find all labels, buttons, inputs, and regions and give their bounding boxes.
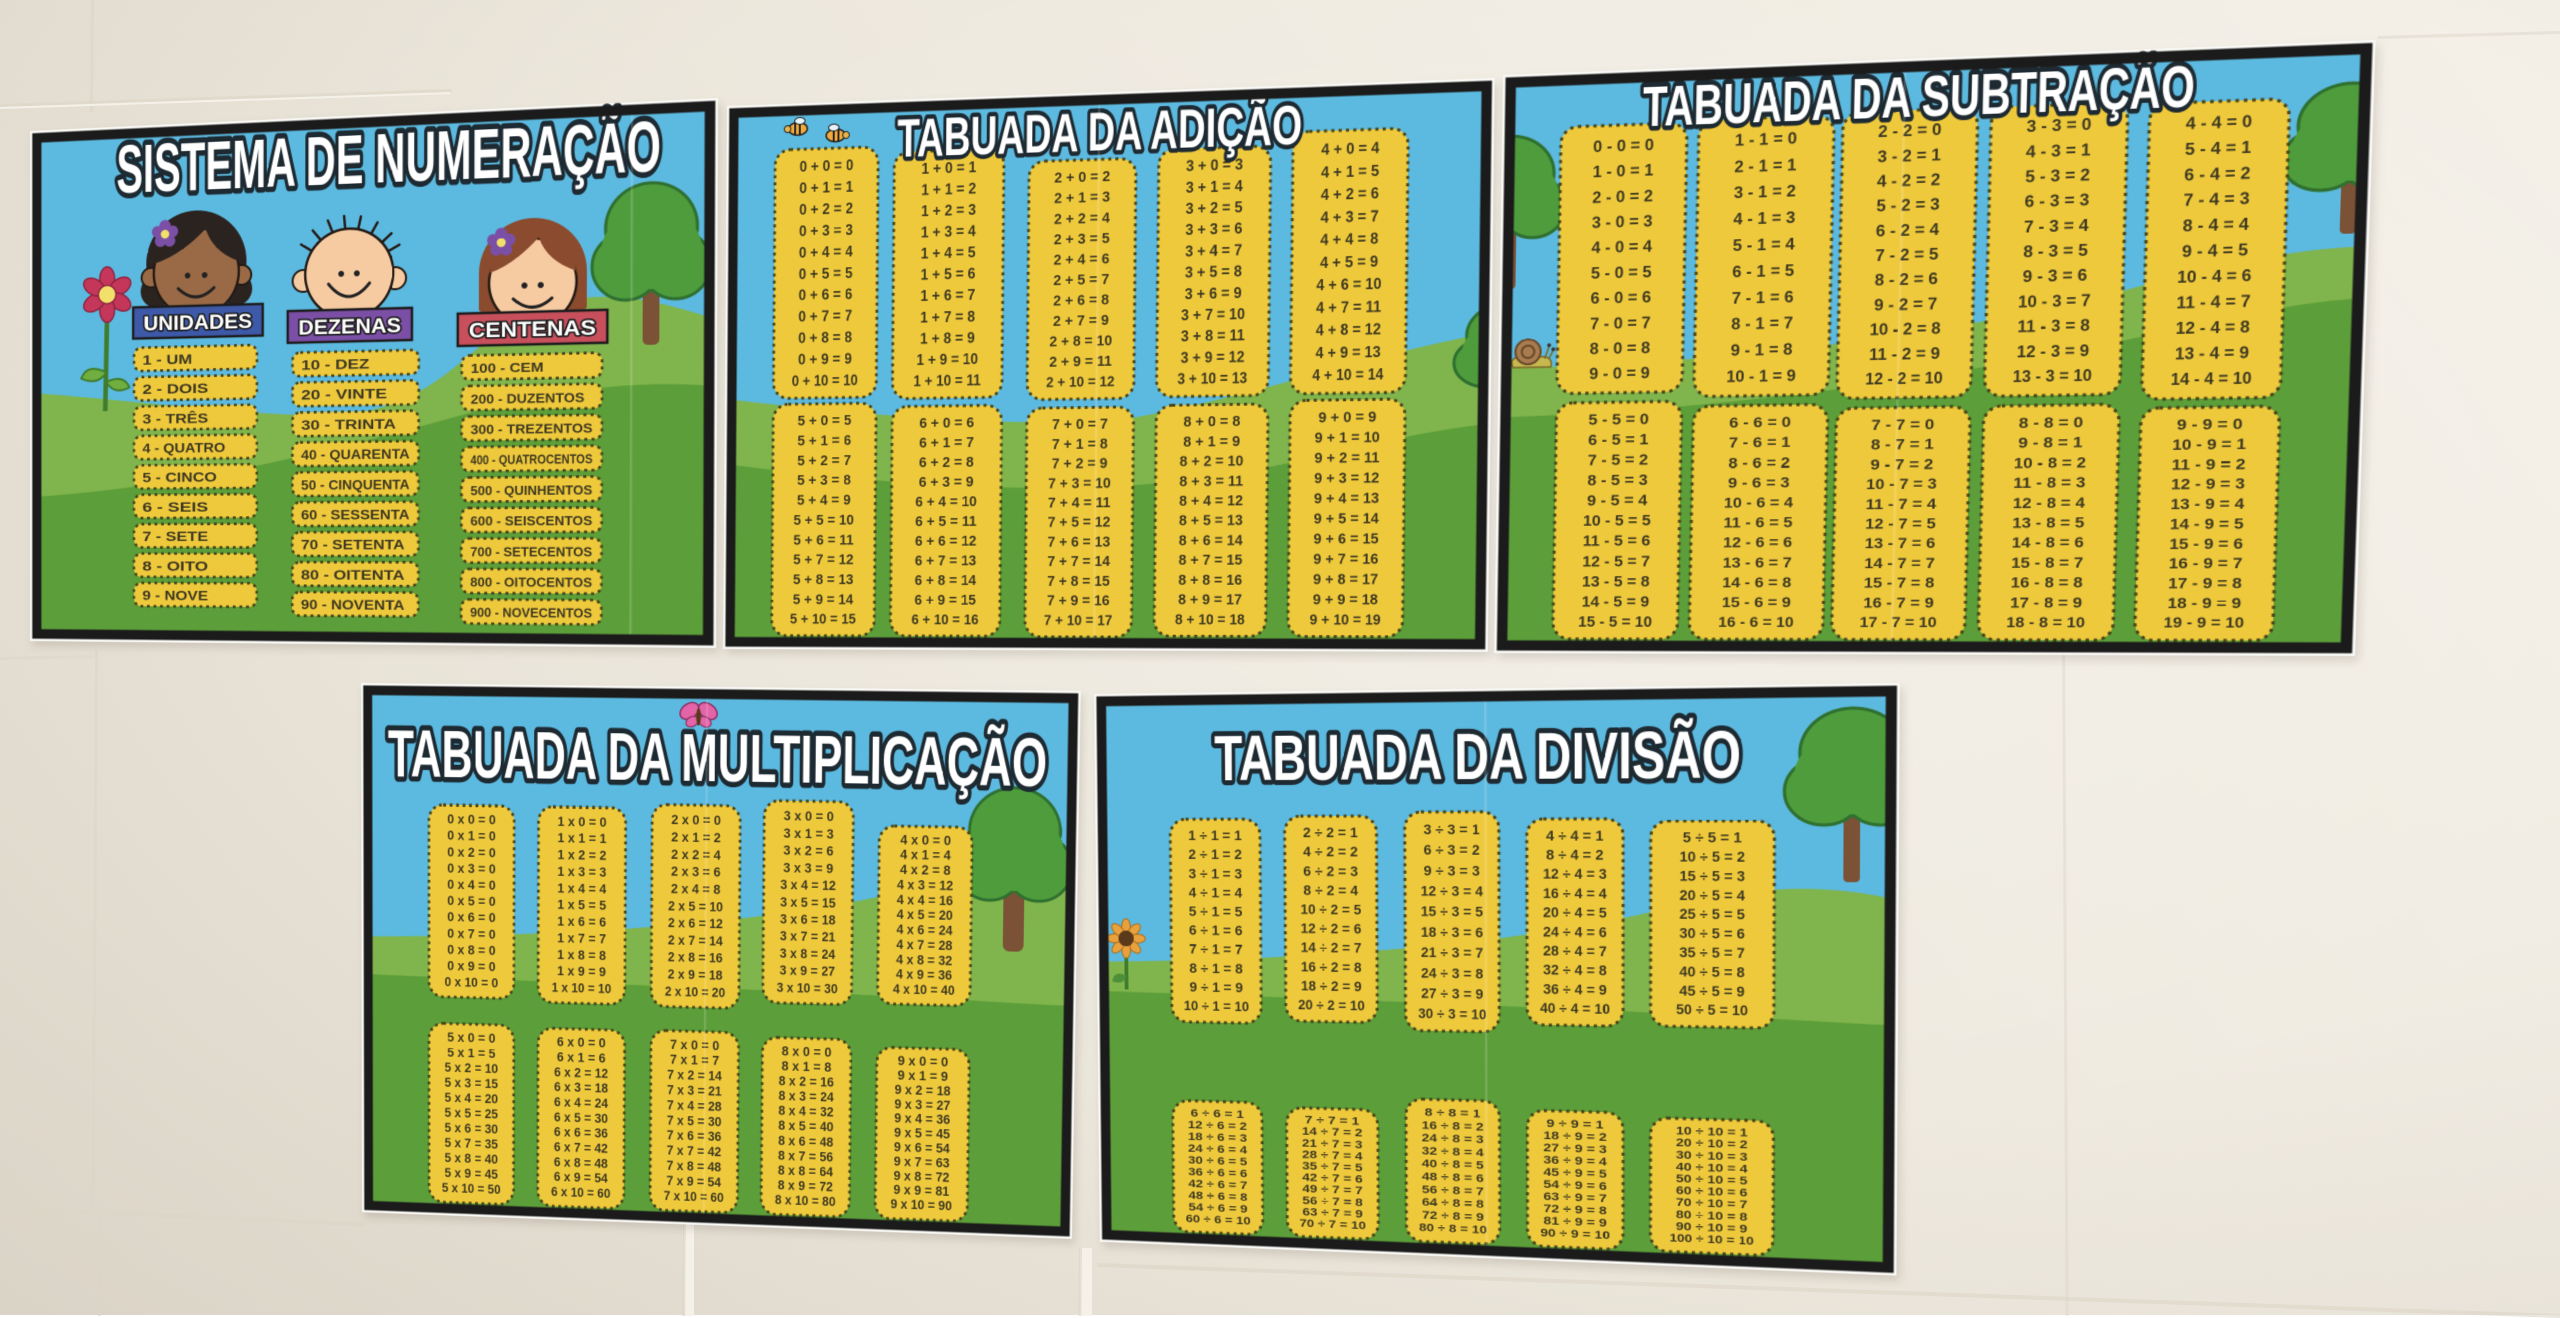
- svg-text:3 + 0 = 3: 3 + 0 = 3: [1186, 157, 1243, 176]
- svg-text:9 + 4 = 13: 9 + 4 = 13: [1314, 490, 1380, 507]
- svg-text:5 x 3 = 15: 5 x 3 = 15: [445, 1075, 498, 1091]
- svg-text:2 x 10 = 20: 2 x 10 = 20: [665, 984, 725, 1000]
- svg-text:5 + 8 = 13: 5 + 8 = 13: [793, 570, 854, 587]
- svg-text:3 + 1 = 4: 3 + 1 = 4: [1186, 178, 1243, 197]
- svg-text:3 x 0 = 0: 3 x 0 = 0: [784, 809, 834, 825]
- svg-text:7 - 6 = 1: 7 - 6 = 1: [1729, 434, 1791, 451]
- svg-text:7 + 10 = 17: 7 + 10 = 17: [1044, 612, 1113, 628]
- svg-text:6 x 3 = 18: 6 x 3 = 18: [554, 1080, 608, 1096]
- svg-text:7 - 0 = 7: 7 - 0 = 7: [1590, 314, 1651, 333]
- svg-text:5 x 1 = 5: 5 x 1 = 5: [447, 1045, 495, 1061]
- svg-text:9 x 10 = 90: 9 x 10 = 90: [890, 1197, 952, 1214]
- svg-text:8 + 8 = 16: 8 + 8 = 16: [1178, 572, 1242, 588]
- svg-text:9 - 7 = 2: 9 - 7 = 2: [1870, 456, 1933, 473]
- svg-text:1 x 7 = 7: 1 x 7 = 7: [557, 931, 606, 947]
- svg-text:0 + 0 = 0: 0 + 0 = 0: [799, 158, 853, 177]
- svg-text:0 + 9 = 9: 0 + 9 = 9: [798, 351, 852, 369]
- svg-text:2 + 2 = 4: 2 + 2 = 4: [1054, 208, 1110, 227]
- svg-text:8 + 6 = 14: 8 + 6 = 14: [1179, 532, 1244, 548]
- svg-text:5 ÷ 5 = 1: 5 ÷ 5 = 1: [1683, 830, 1742, 846]
- svg-text:13 - 7 = 6: 13 - 7 = 6: [1865, 535, 1937, 551]
- svg-text:3 + 8 = 11: 3 + 8 = 11: [1181, 327, 1245, 346]
- svg-text:12 - 2 = 10: 12 - 2 = 10: [1865, 369, 1943, 389]
- svg-text:0 x 3 = 0: 0 x 3 = 0: [447, 861, 495, 876]
- svg-text:4 - QUATRO: 4 - QUATRO: [142, 439, 225, 456]
- svg-text:2 x 2 = 4: 2 x 2 = 4: [671, 847, 721, 863]
- svg-text:1 ÷ 1 = 1: 1 ÷ 1 = 1: [1188, 828, 1242, 843]
- svg-text:7 ÷ 1 = 7: 7 ÷ 1 = 7: [1189, 942, 1243, 958]
- svg-text:8 - OITO: 8 - OITO: [142, 558, 208, 574]
- svg-text:1 + 4 = 5: 1 + 4 = 5: [921, 245, 976, 263]
- svg-text:5 + 0 = 5: 5 + 0 = 5: [798, 411, 852, 429]
- svg-text:6 x 9 = 54: 6 x 9 = 54: [554, 1170, 608, 1186]
- svg-text:50 - CINQUENTA: 50 - CINQUENTA: [301, 476, 410, 493]
- svg-text:5 x 7 = 35: 5 x 7 = 35: [445, 1136, 498, 1152]
- svg-text:6 x 1 = 6: 6 x 1 = 6: [557, 1050, 606, 1066]
- svg-text:12 ÷ 3 = 4: 12 ÷ 3 = 4: [1421, 884, 1483, 900]
- svg-text:9 - 5 = 4: 9 - 5 = 4: [1587, 493, 1648, 510]
- svg-text:3 x 9 = 27: 3 x 9 = 27: [780, 963, 836, 979]
- svg-text:9 - 3 = 6: 9 - 3 = 6: [2022, 267, 2087, 287]
- svg-text:7 - 2 = 5: 7 - 2 = 5: [1875, 246, 1939, 266]
- svg-text:4 x 5 = 20: 4 x 5 = 20: [897, 907, 953, 923]
- svg-text:5 + 9 = 14: 5 + 9 = 14: [793, 590, 854, 607]
- svg-text:7 + 7 = 14: 7 + 7 = 14: [1047, 553, 1110, 569]
- svg-text:5 x 0 = 0: 5 x 0 = 0: [447, 1030, 495, 1046]
- svg-text:24 ÷ 3 = 8: 24 ÷ 3 = 8: [1421, 966, 1483, 982]
- svg-text:15 ÷ 5 = 3: 15 ÷ 5 = 3: [1679, 868, 1745, 884]
- svg-text:100 - CEM: 100 - CEM: [471, 360, 544, 377]
- svg-text:6 ÷ 3 = 2: 6 ÷ 3 = 2: [1424, 843, 1480, 858]
- svg-text:7 x 6 = 36: 7 x 6 = 36: [667, 1128, 722, 1144]
- svg-text:8 + 9 = 17: 8 + 9 = 17: [1178, 591, 1242, 607]
- svg-text:8 x 7 = 56: 8 x 7 = 56: [778, 1148, 833, 1164]
- svg-text:20 ÷ 2 = 10: 20 ÷ 2 = 10: [1298, 997, 1365, 1013]
- svg-text:6 + 7 = 13: 6 + 7 = 13: [915, 552, 977, 568]
- svg-text:7 + 6 = 13: 7 + 6 = 13: [1047, 534, 1110, 550]
- svg-text:15 - 9 = 6: 15 - 9 = 6: [2169, 535, 2243, 552]
- svg-text:4 x 8 = 32: 4 x 8 = 32: [896, 952, 952, 968]
- svg-text:4 - 3 = 1: 4 - 3 = 1: [2026, 141, 2092, 162]
- svg-text:2 x 0 = 0: 2 x 0 = 0: [671, 813, 721, 829]
- svg-text:4 + 10 = 14: 4 + 10 = 14: [1312, 366, 1384, 385]
- svg-text:9 + 2 = 11: 9 + 2 = 11: [1314, 449, 1380, 466]
- svg-text:7 x 5 = 30: 7 x 5 = 30: [667, 1113, 722, 1129]
- svg-text:4 x 7 = 28: 4 x 7 = 28: [896, 937, 952, 953]
- svg-text:6 x 5 = 30: 6 x 5 = 30: [554, 1110, 608, 1126]
- svg-text:4 x 10 = 40: 4 x 10 = 40: [893, 982, 955, 998]
- svg-text:900 - NOVECENTOS: 900 - NOVECENTOS: [470, 605, 592, 621]
- svg-text:8 + 3 = 11: 8 + 3 = 11: [1179, 473, 1244, 490]
- svg-text:12 ÷ 2 = 6: 12 ÷ 2 = 6: [1301, 921, 1362, 937]
- svg-text:11 - 3 = 8: 11 - 3 = 8: [2017, 317, 2090, 337]
- svg-text:10 - 6 = 4: 10 - 6 = 4: [1724, 494, 1794, 510]
- svg-text:3 - TRÊS: 3 - TRÊS: [142, 410, 208, 427]
- svg-text:1 x 2 = 2: 1 x 2 = 2: [557, 848, 606, 863]
- svg-text:2 x 3 = 6: 2 x 3 = 6: [671, 864, 721, 880]
- svg-text:4 x 3 = 12: 4 x 3 = 12: [897, 877, 953, 893]
- svg-text:11 - 6 = 5: 11 - 6 = 5: [1723, 514, 1793, 530]
- svg-text:25 ÷ 5 = 5: 25 ÷ 5 = 5: [1679, 907, 1745, 923]
- svg-text:90 ÷ 9 = 10: 90 ÷ 9 = 10: [1540, 1226, 1610, 1242]
- svg-text:7 - 1 = 6: 7 - 1 = 6: [1732, 288, 1795, 308]
- svg-text:7 x 9 = 54: 7 x 9 = 54: [666, 1174, 721, 1190]
- svg-text:9 - 2 = 7: 9 - 2 = 7: [1874, 295, 1938, 315]
- svg-text:2 + 7 = 9: 2 + 7 = 9: [1053, 311, 1109, 329]
- svg-text:13 - 6 = 7: 13 - 6 = 7: [1722, 555, 1792, 571]
- svg-text:0 x 8 = 0: 0 x 8 = 0: [447, 942, 495, 958]
- svg-text:400 - QUATROCENTOS: 400 - QUATROCENTOS: [470, 452, 592, 468]
- svg-text:5 - 3 = 2: 5 - 3 = 2: [2025, 166, 2091, 187]
- svg-text:70 - SETENTA: 70 - SETENTA: [301, 537, 405, 553]
- svg-text:1 - UM: 1 - UM: [142, 351, 192, 368]
- svg-text:30 ÷ 5 = 6: 30 ÷ 5 = 6: [1679, 926, 1745, 942]
- svg-text:11 - 8 = 3: 11 - 8 = 3: [2013, 474, 2086, 491]
- svg-text:8 - 2 = 6: 8 - 2 = 6: [1874, 270, 1938, 290]
- svg-text:8 x 10 = 80: 8 x 10 = 80: [775, 1193, 836, 1210]
- svg-text:12 - 4 = 8: 12 - 4 = 8: [2175, 318, 2250, 338]
- svg-text:0 x 4 = 0: 0 x 4 = 0: [447, 877, 495, 892]
- svg-text:4 ÷ 1 = 4: 4 ÷ 1 = 4: [1189, 885, 1243, 900]
- svg-text:8 x 4 = 32: 8 x 4 = 32: [778, 1104, 833, 1120]
- svg-text:14 - 9 = 5: 14 - 9 = 5: [2170, 515, 2245, 532]
- svg-text:0 + 8 = 8: 0 + 8 = 8: [798, 329, 852, 347]
- svg-text:18 - 8 = 10: 18 - 8 = 10: [2006, 615, 2085, 631]
- svg-text:2 x 1 = 2: 2 x 1 = 2: [671, 830, 721, 846]
- svg-text:7 + 2 = 9: 7 + 2 = 9: [1052, 455, 1108, 472]
- svg-text:2 + 0 = 2: 2 + 0 = 2: [1054, 167, 1110, 186]
- svg-text:9 - NOVE: 9 - NOVE: [142, 587, 208, 603]
- svg-text:8 x 9 = 72: 8 x 9 = 72: [778, 1178, 833, 1194]
- svg-text:5 + 5 = 10: 5 + 5 = 10: [793, 511, 854, 528]
- svg-text:5 x 5 = 25: 5 x 5 = 25: [445, 1105, 498, 1121]
- svg-text:30 ÷ 3 = 10: 30 ÷ 3 = 10: [1418, 1006, 1486, 1022]
- svg-text:CENTENAS: CENTENAS: [469, 316, 596, 343]
- svg-text:3 ÷ 3 = 1: 3 ÷ 3 = 1: [1423, 822, 1479, 837]
- svg-text:7 x 0 = 0: 7 x 0 = 0: [670, 1037, 719, 1053]
- svg-text:5 - 2 = 3: 5 - 2 = 3: [1876, 196, 1940, 216]
- svg-text:TABUADA DA DIVISÃO: TABUADA DA DIVISÃO: [1214, 717, 1741, 795]
- svg-text:DEZENAS: DEZENAS: [298, 314, 401, 340]
- svg-text:0 x 1 = 0: 0 x 1 = 0: [447, 828, 495, 843]
- svg-text:5 + 1 = 6: 5 + 1 = 6: [797, 431, 851, 448]
- svg-text:1 + 7 = 8: 1 + 7 = 8: [920, 309, 975, 327]
- svg-text:2 x 6 = 12: 2 x 6 = 12: [668, 916, 723, 932]
- svg-text:3 x 10 = 30: 3 x 10 = 30: [777, 980, 838, 996]
- svg-text:8 x 5 = 40: 8 x 5 = 40: [778, 1118, 833, 1134]
- svg-text:12 - 6 = 6: 12 - 6 = 6: [1723, 535, 1793, 551]
- svg-text:10 ÷ 1 = 10: 10 ÷ 1 = 10: [1184, 998, 1249, 1014]
- svg-text:12 - 8 = 4: 12 - 8 = 4: [2013, 494, 2086, 511]
- svg-text:10 - 2 = 8: 10 - 2 = 8: [1869, 320, 1941, 340]
- svg-text:0 + 7 = 7: 0 + 7 = 7: [798, 308, 852, 326]
- svg-text:8 - 8 = 0: 8 - 8 = 0: [2019, 414, 2084, 431]
- svg-text:8 - 4 = 4: 8 - 4 = 4: [2182, 216, 2249, 237]
- svg-text:9 - 8 = 1: 9 - 8 = 1: [2018, 434, 2083, 451]
- svg-text:40 ÷ 5 = 8: 40 ÷ 5 = 8: [1679, 964, 1745, 981]
- svg-text:16 - 7 = 9: 16 - 7 = 9: [1863, 595, 1934, 611]
- svg-text:3 - 0 = 3: 3 - 0 = 3: [1592, 213, 1653, 233]
- svg-text:9 + 7 = 16: 9 + 7 = 16: [1313, 550, 1379, 567]
- svg-text:40 ÷ 4 = 10: 40 ÷ 4 = 10: [1540, 1001, 1610, 1018]
- svg-text:7 + 8 = 15: 7 + 8 = 15: [1047, 573, 1110, 589]
- svg-text:10 - DEZ: 10 - DEZ: [301, 356, 369, 373]
- svg-text:4 - 0 = 4: 4 - 0 = 4: [1591, 238, 1652, 258]
- svg-text:0 x 10 = 0: 0 x 10 = 0: [445, 975, 499, 991]
- svg-text:15 - 8 = 7: 15 - 8 = 7: [2011, 555, 2084, 571]
- svg-text:17 - 7 = 10: 17 - 7 = 10: [1859, 614, 1936, 630]
- svg-text:9 + 1 = 10: 9 + 1 = 10: [1315, 429, 1380, 446]
- svg-text:10 - 3 = 7: 10 - 3 = 7: [2018, 292, 2091, 312]
- svg-text:9 + 5 = 14: 9 + 5 = 14: [1314, 510, 1380, 527]
- svg-text:1 x 4 = 4: 1 x 4 = 4: [557, 881, 606, 897]
- svg-text:18 ÷ 2 = 9: 18 ÷ 2 = 9: [1301, 978, 1362, 994]
- svg-text:4 - 1 = 3: 4 - 1 = 3: [1733, 209, 1796, 229]
- svg-text:5 + 6 = 11: 5 + 6 = 11: [793, 531, 854, 548]
- svg-text:2 x 7 = 14: 2 x 7 = 14: [668, 933, 723, 949]
- svg-text:5 - 4 = 1: 5 - 4 = 1: [2185, 138, 2252, 159]
- svg-text:6 x 0 = 0: 6 x 0 = 0: [557, 1035, 606, 1051]
- svg-text:9 + 10 = 19: 9 + 10 = 19: [1310, 611, 1382, 627]
- svg-text:2 + 3 = 5: 2 + 3 = 5: [1054, 229, 1110, 248]
- svg-text:50 ÷ 5 = 10: 50 ÷ 5 = 10: [1676, 1002, 1748, 1019]
- svg-text:8 + 7 = 15: 8 + 7 = 15: [1178, 552, 1243, 568]
- svg-text:0 + 5 = 5: 0 + 5 = 5: [799, 265, 853, 283]
- svg-text:4 + 7 = 11: 4 + 7 = 11: [1316, 299, 1381, 318]
- svg-text:8 - 1 = 7: 8 - 1 = 7: [1731, 315, 1794, 334]
- svg-text:9 ÷ 1 = 9: 9 ÷ 1 = 9: [1189, 980, 1243, 996]
- svg-text:6 - 0 = 6: 6 - 0 = 6: [1590, 289, 1651, 308]
- svg-text:0 x 2 = 0: 0 x 2 = 0: [447, 845, 495, 860]
- svg-text:17 - 9 = 8: 17 - 9 = 8: [2168, 575, 2242, 591]
- svg-text:1 x 5 = 5: 1 x 5 = 5: [557, 898, 606, 914]
- svg-text:3 + 10 = 13: 3 + 10 = 13: [1177, 370, 1247, 388]
- svg-text:70 ÷ 7 = 10: 70 ÷ 7 = 10: [1300, 1217, 1367, 1232]
- svg-text:2 + 5 = 7: 2 + 5 = 7: [1053, 270, 1109, 288]
- svg-text:6 - 6 = 0: 6 - 6 = 0: [1729, 414, 1791, 431]
- svg-text:4 x 4 = 16: 4 x 4 = 16: [897, 892, 953, 908]
- svg-text:8 x 6 = 48: 8 x 6 = 48: [778, 1133, 833, 1149]
- svg-text:5 - 5 = 0: 5 - 5 = 0: [1588, 411, 1649, 429]
- svg-text:1 + 5 = 6: 1 + 5 = 6: [921, 266, 976, 284]
- svg-text:0 x 6 = 0: 0 x 6 = 0: [447, 910, 495, 925]
- svg-text:1 + 6 = 7: 1 + 6 = 7: [920, 287, 975, 305]
- svg-text:2 x 4 = 8: 2 x 4 = 8: [671, 882, 721, 898]
- svg-text:6 + 1 = 7: 6 + 1 = 7: [919, 434, 974, 451]
- svg-text:6 + 4 = 10: 6 + 4 = 10: [915, 493, 977, 509]
- svg-text:2 + 4 = 6: 2 + 4 = 6: [1054, 249, 1110, 268]
- svg-text:8 + 5 = 13: 8 + 5 = 13: [1179, 512, 1243, 529]
- svg-text:2 x 8 = 16: 2 x 8 = 16: [668, 950, 723, 966]
- svg-text:5 x 8 = 40: 5 x 8 = 40: [445, 1151, 498, 1167]
- svg-text:7 x 1 = 7: 7 x 1 = 7: [670, 1052, 719, 1068]
- svg-text:11 - 2 = 9: 11 - 2 = 9: [1869, 345, 1941, 365]
- svg-text:4 - 4 = 0: 4 - 4 = 0: [2185, 112, 2252, 133]
- svg-text:4 + 2 = 6: 4 + 2 = 6: [1321, 185, 1379, 204]
- svg-text:1 x 6 = 6: 1 x 6 = 6: [557, 914, 606, 930]
- svg-text:21 ÷ 3 = 7: 21 ÷ 3 = 7: [1421, 945, 1483, 961]
- svg-text:18 ÷ 3 = 6: 18 ÷ 3 = 6: [1421, 925, 1483, 941]
- svg-text:5 - 0 = 5: 5 - 0 = 5: [1591, 263, 1652, 282]
- svg-text:14 - 4 = 10: 14 - 4 = 10: [2170, 369, 2252, 389]
- svg-text:7 + 1 = 8: 7 + 1 = 8: [1052, 435, 1109, 452]
- svg-text:7 - 5 = 2: 7 - 5 = 2: [1588, 452, 1649, 469]
- svg-text:3 x 5 = 15: 3 x 5 = 15: [780, 895, 836, 911]
- svg-text:10 ÷ 5 = 2: 10 ÷ 5 = 2: [1679, 849, 1745, 865]
- svg-text:35 ÷ 5 = 7: 35 ÷ 5 = 7: [1679, 945, 1745, 961]
- svg-text:7 + 9 = 16: 7 + 9 = 16: [1047, 592, 1110, 608]
- svg-text:36 ÷ 4 = 9: 36 ÷ 4 = 9: [1543, 982, 1607, 998]
- svg-text:0 - 0 = 0: 0 - 0 = 0: [1593, 136, 1654, 156]
- svg-text:9 - 1 = 8: 9 - 1 = 8: [1730, 341, 1793, 360]
- svg-text:0 + 4 = 4: 0 + 4 = 4: [799, 244, 854, 262]
- svg-text:18 - 9 = 9: 18 - 9 = 9: [2167, 595, 2241, 611]
- svg-text:3 x 4 = 12: 3 x 4 = 12: [780, 877, 836, 893]
- svg-text:5 ÷ 1 = 5: 5 ÷ 1 = 5: [1189, 904, 1243, 919]
- svg-text:13 - 8 = 5: 13 - 8 = 5: [2012, 515, 2085, 532]
- svg-text:4 - 2 = 2: 4 - 2 = 2: [1877, 171, 1941, 191]
- svg-text:11 - 5 = 6: 11 - 5 = 6: [1583, 533, 1651, 550]
- svg-text:13 - 4 = 9: 13 - 4 = 9: [2175, 344, 2250, 364]
- svg-text:8 ÷ 4 = 2: 8 ÷ 4 = 2: [1546, 847, 1604, 863]
- svg-text:800 - OITOCENTOS: 800 - OITOCENTOS: [470, 575, 592, 591]
- svg-text:60 - SESSENTA: 60 - SESSENTA: [301, 506, 410, 522]
- svg-text:2 - 0 = 2: 2 - 0 = 2: [1592, 187, 1653, 207]
- svg-text:8 ÷ 2 = 4: 8 ÷ 2 = 4: [1303, 883, 1358, 898]
- svg-text:10 - 4 = 6: 10 - 4 = 6: [2177, 267, 2252, 287]
- svg-text:4 + 5 = 9: 4 + 5 = 9: [1320, 253, 1378, 272]
- svg-text:16 - 6 = 10: 16 - 6 = 10: [1718, 614, 1794, 630]
- svg-text:1 + 3 = 4: 1 + 3 = 4: [921, 223, 977, 241]
- svg-text:4 + 8 = 12: 4 + 8 = 12: [1316, 321, 1381, 340]
- svg-text:1 + 10 = 11: 1 + 10 = 11: [913, 372, 980, 390]
- svg-text:8 x 3 = 24: 8 x 3 = 24: [778, 1089, 833, 1105]
- svg-text:16 - 9 = 7: 16 - 9 = 7: [2168, 555, 2242, 572]
- svg-text:14 - 7 = 7: 14 - 7 = 7: [1864, 555, 1935, 571]
- svg-text:4 + 1 = 5: 4 + 1 = 5: [1321, 163, 1379, 182]
- svg-text:2 x 9 = 18: 2 x 9 = 18: [668, 967, 723, 983]
- svg-text:7 - 3 = 4: 7 - 3 = 4: [2024, 216, 2090, 236]
- svg-text:500 - QUINHENTOS: 500 - QUINHENTOS: [470, 482, 592, 498]
- svg-text:UNIDADES: UNIDADES: [143, 310, 252, 336]
- svg-text:6 x 6 = 36: 6 x 6 = 36: [554, 1125, 608, 1141]
- svg-text:15 - 6 = 9: 15 - 6 = 9: [1722, 594, 1792, 610]
- svg-text:3 + 7 = 10: 3 + 7 = 10: [1181, 306, 1245, 325]
- svg-text:7 - SETE: 7 - SETE: [142, 529, 208, 545]
- svg-text:3 x 7 = 21: 3 x 7 = 21: [780, 929, 836, 945]
- svg-text:8 ÷ 1 = 8: 8 ÷ 1 = 8: [1189, 961, 1243, 977]
- svg-text:8 + 1 = 9: 8 + 1 = 9: [1183, 433, 1240, 450]
- svg-text:6 + 9 = 15: 6 + 9 = 15: [914, 592, 976, 608]
- svg-text:5 - CINCO: 5 - CINCO: [142, 469, 216, 485]
- svg-text:4 + 9 = 13: 4 + 9 = 13: [1315, 344, 1380, 363]
- svg-text:5 + 2 = 7: 5 + 2 = 7: [797, 451, 851, 468]
- svg-text:11 - 4 = 7: 11 - 4 = 7: [2176, 292, 2251, 312]
- svg-text:9 - 0 = 9: 9 - 0 = 9: [1589, 365, 1650, 384]
- svg-text:4 ÷ 2 = 2: 4 ÷ 2 = 2: [1303, 845, 1358, 860]
- svg-text:4 + 6 = 10: 4 + 6 = 10: [1316, 276, 1381, 295]
- svg-text:3 x 3 = 9: 3 x 3 = 9: [783, 860, 833, 876]
- svg-text:40 - QUARENTA: 40 - QUARENTA: [301, 446, 410, 463]
- svg-text:24 ÷ 4 = 6: 24 ÷ 4 = 6: [1543, 924, 1607, 940]
- svg-text:12 - 7 = 5: 12 - 7 = 5: [1865, 516, 1937, 532]
- svg-text:5 + 7 = 12: 5 + 7 = 12: [793, 551, 854, 568]
- svg-text:6 - 5 = 1: 6 - 5 = 1: [1588, 432, 1649, 450]
- svg-text:6 x 4 = 24: 6 x 4 = 24: [554, 1095, 608, 1111]
- svg-text:7 + 4 = 11: 7 + 4 = 11: [1048, 494, 1111, 510]
- svg-text:4 ÷ 4 = 1: 4 ÷ 4 = 1: [1546, 828, 1604, 844]
- svg-text:6 x 2 = 12: 6 x 2 = 12: [554, 1065, 608, 1081]
- svg-text:1 - 0 = 1: 1 - 0 = 1: [1593, 162, 1654, 182]
- svg-text:0 + 2 = 2: 0 + 2 = 2: [799, 201, 853, 219]
- svg-text:2 + 10 = 12: 2 + 10 = 12: [1046, 372, 1115, 390]
- svg-text:11 - 9 = 2: 11 - 9 = 2: [2171, 456, 2245, 473]
- svg-text:0 x 9 = 0: 0 x 9 = 0: [447, 959, 495, 975]
- svg-text:3 + 9 = 12: 3 + 9 = 12: [1181, 349, 1245, 367]
- svg-text:28 ÷ 4 = 7: 28 ÷ 4 = 7: [1543, 943, 1607, 959]
- svg-text:3 - 1 = 2: 3 - 1 = 2: [1734, 183, 1797, 203]
- svg-text:2 x 5 = 10: 2 x 5 = 10: [668, 899, 723, 915]
- svg-text:80 - OITENTA: 80 - OITENTA: [301, 567, 405, 583]
- svg-text:10 - 7 = 3: 10 - 7 = 3: [1866, 476, 1938, 493]
- svg-text:7 + 3 = 10: 7 + 3 = 10: [1048, 475, 1111, 492]
- svg-text:300 - TREZENTOS: 300 - TREZENTOS: [471, 421, 593, 438]
- svg-text:16 ÷ 4 = 4: 16 ÷ 4 = 4: [1543, 886, 1607, 902]
- svg-text:2 ÷ 2 = 1: 2 ÷ 2 = 1: [1303, 825, 1358, 840]
- svg-text:0 + 1 = 1: 0 + 1 = 1: [799, 179, 853, 197]
- svg-text:0 x 5 = 0: 0 x 5 = 0: [447, 894, 495, 909]
- svg-text:3 + 2 = 5: 3 + 2 = 5: [1186, 199, 1243, 218]
- svg-text:12 - 9 = 3: 12 - 9 = 3: [2171, 476, 2245, 493]
- svg-text:8 - 6 = 2: 8 - 6 = 2: [1728, 454, 1790, 471]
- svg-text:1 x 10 = 10: 1 x 10 = 10: [552, 980, 612, 996]
- svg-text:8 + 2 = 10: 8 + 2 = 10: [1179, 453, 1243, 470]
- svg-text:8 x 2 = 16: 8 x 2 = 16: [779, 1074, 834, 1090]
- svg-text:9 - 9 = 0: 9 - 9 = 0: [2177, 416, 2243, 433]
- svg-text:8 + 10 = 18: 8 + 10 = 18: [1175, 611, 1245, 627]
- svg-text:0 x 7 = 0: 0 x 7 = 0: [447, 926, 495, 942]
- svg-text:16 - 8 = 8: 16 - 8 = 8: [2010, 575, 2083, 591]
- svg-text:2 + 9 = 11: 2 + 9 = 11: [1049, 352, 1112, 370]
- svg-text:10 - 8 = 2: 10 - 8 = 2: [2014, 454, 2087, 471]
- svg-text:3 + 6 = 9: 3 + 6 = 9: [1185, 285, 1242, 304]
- svg-text:6 + 6 = 12: 6 + 6 = 12: [915, 533, 977, 549]
- svg-text:1 + 8 = 9: 1 + 8 = 9: [920, 330, 975, 348]
- svg-text:0 + 3 = 3: 0 + 3 = 3: [799, 222, 853, 240]
- svg-text:7 - 4 = 3: 7 - 4 = 3: [2183, 190, 2250, 211]
- svg-text:10 - 5 = 5: 10 - 5 = 5: [1583, 513, 1651, 530]
- svg-text:19 - 9 = 10: 19 - 9 = 10: [2163, 615, 2244, 631]
- svg-text:600 - SEISCENTOS: 600 - SEISCENTOS: [470, 513, 592, 529]
- svg-text:TABUADA DA MULTIPLICAÇÃO: TABUADA DA MULTIPLICAÇÃO: [388, 715, 1048, 801]
- svg-text:1 x 0 = 0: 1 x 0 = 0: [558, 814, 607, 829]
- svg-text:7 + 5 = 12: 7 + 5 = 12: [1048, 514, 1111, 530]
- svg-text:10 - 9 = 1: 10 - 9 = 1: [2172, 436, 2247, 453]
- svg-text:6 x 10 = 60: 6 x 10 = 60: [551, 1185, 610, 1201]
- svg-text:5 - 1 = 4: 5 - 1 = 4: [1733, 235, 1796, 255]
- svg-text:12 ÷ 4 = 3: 12 ÷ 4 = 3: [1543, 867, 1607, 883]
- svg-text:20 ÷ 5 = 4: 20 ÷ 5 = 4: [1679, 888, 1745, 904]
- svg-text:1 + 9 = 10: 1 + 9 = 10: [916, 351, 978, 369]
- svg-text:16 ÷ 2 = 8: 16 ÷ 2 = 8: [1301, 959, 1362, 975]
- svg-text:6 + 3 = 9: 6 + 3 = 9: [919, 473, 974, 489]
- svg-text:5 x 6 = 30: 5 x 6 = 30: [445, 1120, 498, 1136]
- svg-text:15 - 5 = 10: 15 - 5 = 10: [1578, 614, 1652, 631]
- svg-text:17 - 8 = 9: 17 - 8 = 9: [2010, 595, 2083, 611]
- svg-text:4 + 3 = 7: 4 + 3 = 7: [1320, 208, 1378, 227]
- svg-text:4 x 9 = 36: 4 x 9 = 36: [896, 967, 952, 983]
- svg-text:9 - 4 = 5: 9 - 4 = 5: [2182, 241, 2249, 261]
